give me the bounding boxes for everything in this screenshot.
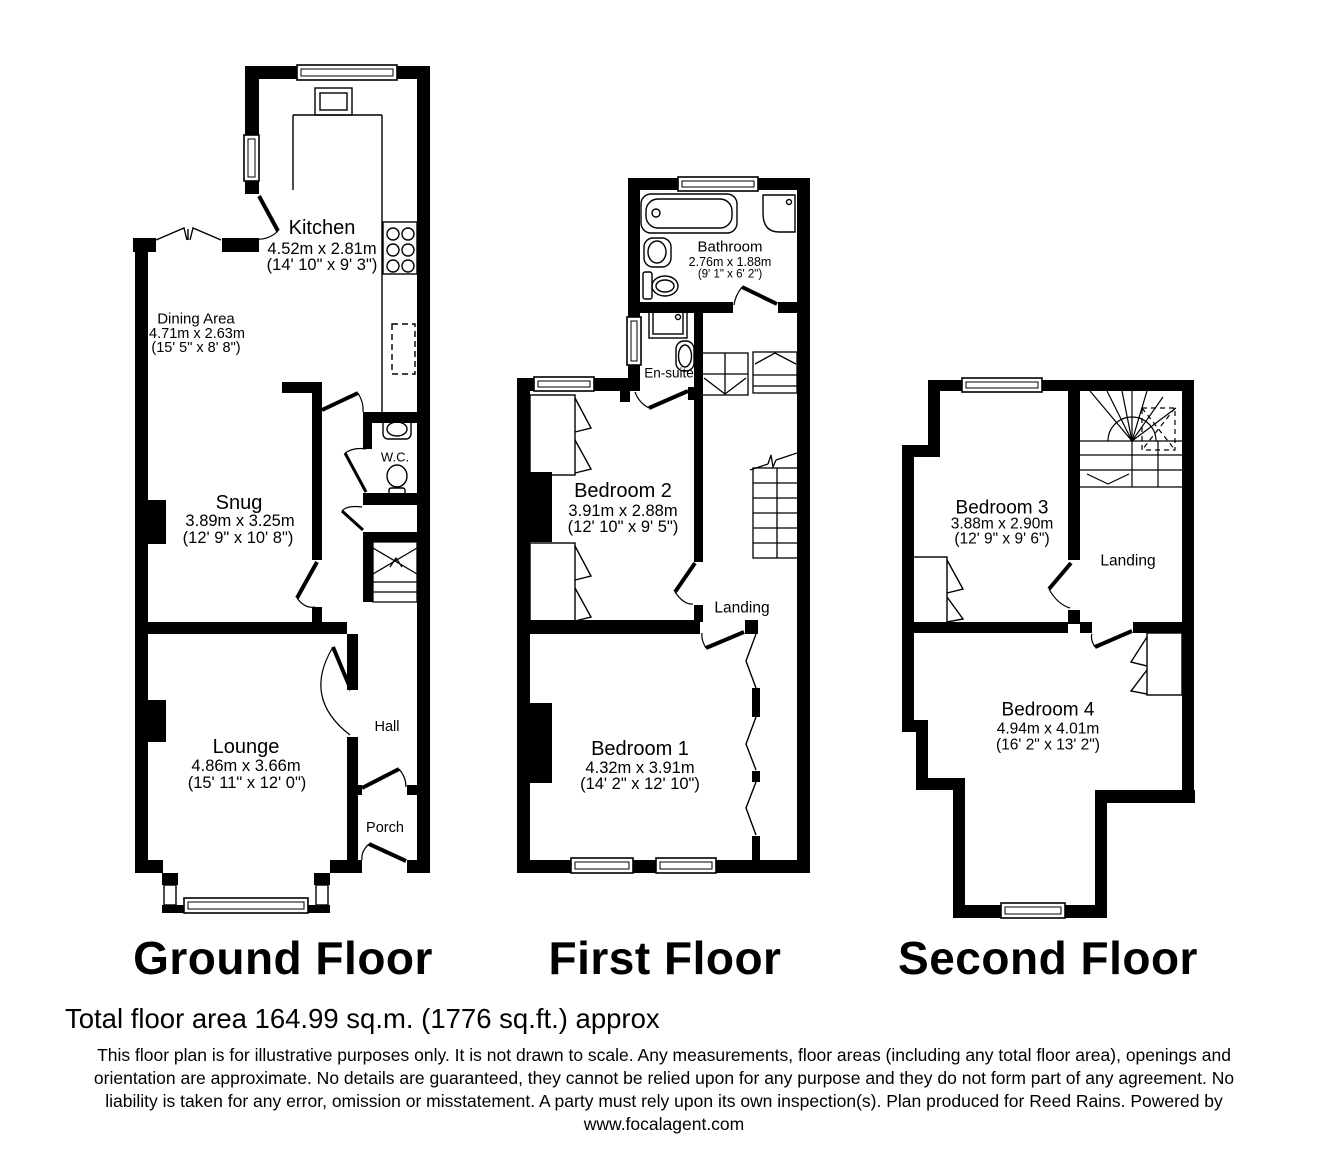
room-dim-bedroom-2-imperial: (12' 10" x 9' 5") bbox=[568, 519, 679, 536]
disclaimer-line-3: liability is taken for any error, omissi… bbox=[105, 1091, 1223, 1112]
door bbox=[675, 563, 695, 604]
floor-title-first: First Floor bbox=[549, 935, 782, 981]
window bbox=[316, 885, 328, 905]
room-label-dining-area: Dining Area bbox=[157, 312, 235, 327]
french-window bbox=[156, 228, 221, 240]
floorplan-page: Kitchen 4.52m x 2.81m (14' 10" x 9' 3") … bbox=[0, 0, 1328, 1151]
window bbox=[627, 317, 641, 365]
second-floor-windows bbox=[962, 378, 1065, 918]
door bbox=[362, 844, 406, 861]
room-label-lounge: Lounge bbox=[213, 737, 280, 757]
window bbox=[678, 177, 758, 191]
room-dim-lounge-metric: 4.86m x 3.66m bbox=[191, 758, 300, 775]
wardrobe bbox=[530, 395, 591, 475]
ensuite-shower-fixture bbox=[649, 308, 687, 338]
room-dim-bedroom-4-imperial: (16' 2" x 13' 2") bbox=[996, 737, 1100, 753]
door bbox=[1049, 563, 1071, 608]
second-floor-walls bbox=[902, 380, 1195, 918]
room-label-porch: Porch bbox=[366, 821, 404, 836]
room-label-landing-second: Landing bbox=[1100, 553, 1155, 569]
window bbox=[244, 135, 259, 181]
window bbox=[184, 898, 308, 913]
bath-fixture bbox=[641, 194, 737, 233]
room-dim-bedroom-4-metric: 4.94m x 4.01m bbox=[997, 721, 1100, 737]
door bbox=[734, 287, 777, 305]
door bbox=[342, 507, 363, 531]
room-label-wc: W.C. bbox=[381, 451, 409, 464]
room-dim-snug-metric: 3.89m x 3.25m bbox=[185, 513, 294, 530]
shower-fixture bbox=[763, 195, 795, 232]
room-dim-bedroom-3-imperial: (12' 9" x 9' 6") bbox=[954, 531, 1049, 547]
window bbox=[962, 378, 1042, 392]
room-dim-snug-imperial: (12' 9" x 10' 8") bbox=[183, 530, 294, 547]
wc-toilet bbox=[387, 465, 407, 494]
room-label-landing-first: Landing bbox=[714, 600, 769, 616]
window bbox=[297, 65, 397, 80]
window bbox=[534, 377, 594, 391]
disclaimer-line-1: This floor plan is for illustrative purp… bbox=[97, 1045, 1231, 1066]
sink-fixture bbox=[644, 238, 671, 267]
appliance-dashed bbox=[392, 324, 415, 374]
door bbox=[635, 391, 688, 408]
room-label-bedroom-2: Bedroom 2 bbox=[574, 481, 672, 501]
door bbox=[345, 449, 366, 493]
door bbox=[1091, 631, 1132, 647]
door bbox=[297, 562, 317, 607]
window bbox=[571, 858, 633, 873]
window bbox=[656, 858, 716, 873]
toilet-fixture bbox=[643, 272, 678, 299]
room-label-kitchen: Kitchen bbox=[289, 218, 356, 238]
room-label-bedroom-1: Bedroom 1 bbox=[591, 739, 689, 759]
window bbox=[164, 885, 176, 905]
room-label-snug: Snug bbox=[216, 493, 263, 513]
wardrobe-doors bbox=[746, 634, 756, 835]
room-dim-lounge-imperial: (15' 11" x 12' 0") bbox=[188, 775, 307, 792]
wardrobe bbox=[910, 557, 963, 623]
room-label-bedroom-4: Bedroom 4 bbox=[1002, 701, 1095, 720]
room-dim-kitchen-imperial: (14' 10" x 9' 3") bbox=[267, 257, 378, 274]
door bbox=[702, 632, 744, 648]
wardrobe bbox=[1131, 633, 1182, 695]
winder-stairs bbox=[1080, 391, 1182, 487]
room-dim-bathroom-imperial: (9' 1" x 6' 2") bbox=[698, 269, 762, 281]
room-label-bathroom: Bathroom bbox=[697, 240, 762, 255]
floor-title-second: Second Floor bbox=[898, 935, 1198, 981]
door bbox=[321, 647, 351, 735]
hob-icon bbox=[383, 222, 417, 274]
window bbox=[1001, 903, 1065, 918]
second-floor-doors bbox=[1049, 563, 1132, 647]
wardrobe bbox=[530, 543, 591, 623]
ground-stairs bbox=[373, 542, 417, 602]
room-label-en-suite: En-suite bbox=[644, 366, 694, 380]
kitchen-sink bbox=[315, 88, 352, 115]
room-dim-bathroom-metric: 2.76m x 1.88m bbox=[689, 256, 772, 269]
total-floor-area: Total floor area 164.99 sq.m. (1776 sq.f… bbox=[65, 1003, 660, 1035]
disclaimer-line-2: orientation are approximate. No details … bbox=[94, 1068, 1234, 1089]
floor-title-ground: Ground Floor bbox=[133, 935, 433, 981]
door bbox=[362, 769, 406, 788]
first-floor-stairs bbox=[702, 352, 800, 558]
room-label-hall: Hall bbox=[375, 720, 400, 735]
room-dim-bedroom-1-imperial: (14' 2" x 12' 10") bbox=[580, 776, 700, 793]
disclaimer-line-4: www.focalagent.com bbox=[584, 1114, 745, 1135]
door bbox=[322, 393, 363, 412]
room-dim-dining-imperial: (15' 5" x 8' 8") bbox=[151, 341, 240, 356]
door bbox=[252, 196, 278, 239]
